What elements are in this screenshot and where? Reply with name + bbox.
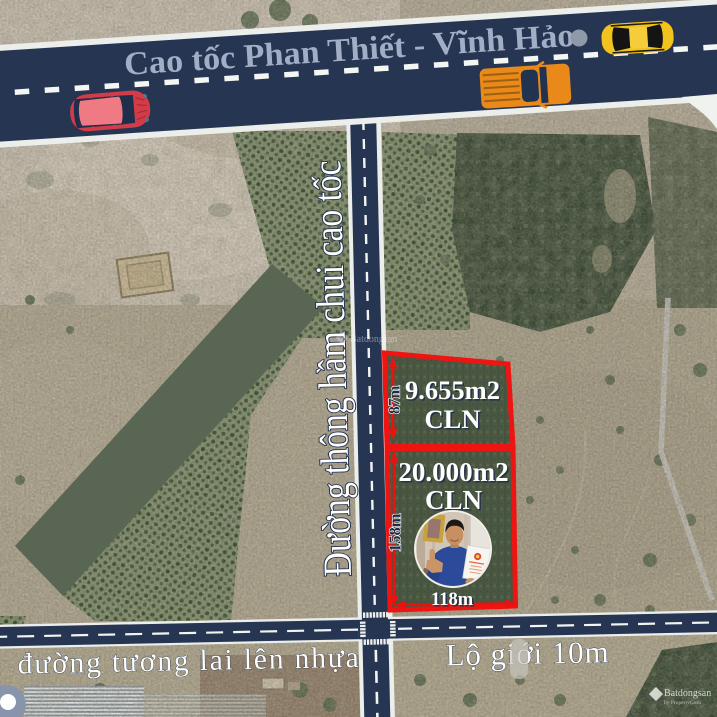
svg-text:CLN: CLN (425, 404, 481, 434)
svg-text:Batdongsan: Batdongsan (350, 334, 397, 345)
svg-text:9.655m2: 9.655m2 (405, 375, 500, 405)
svg-text:Batdongsan: Batdongsan (664, 688, 711, 699)
svg-text:20.000m2: 20.000m2 (398, 457, 508, 487)
svg-text:87m: 87m (387, 386, 404, 415)
svg-text:118m: 118m (431, 590, 474, 610)
svg-text:158m: 158m (386, 513, 405, 552)
svg-text:by PropertyGuru: by PropertyGuru (664, 700, 701, 706)
